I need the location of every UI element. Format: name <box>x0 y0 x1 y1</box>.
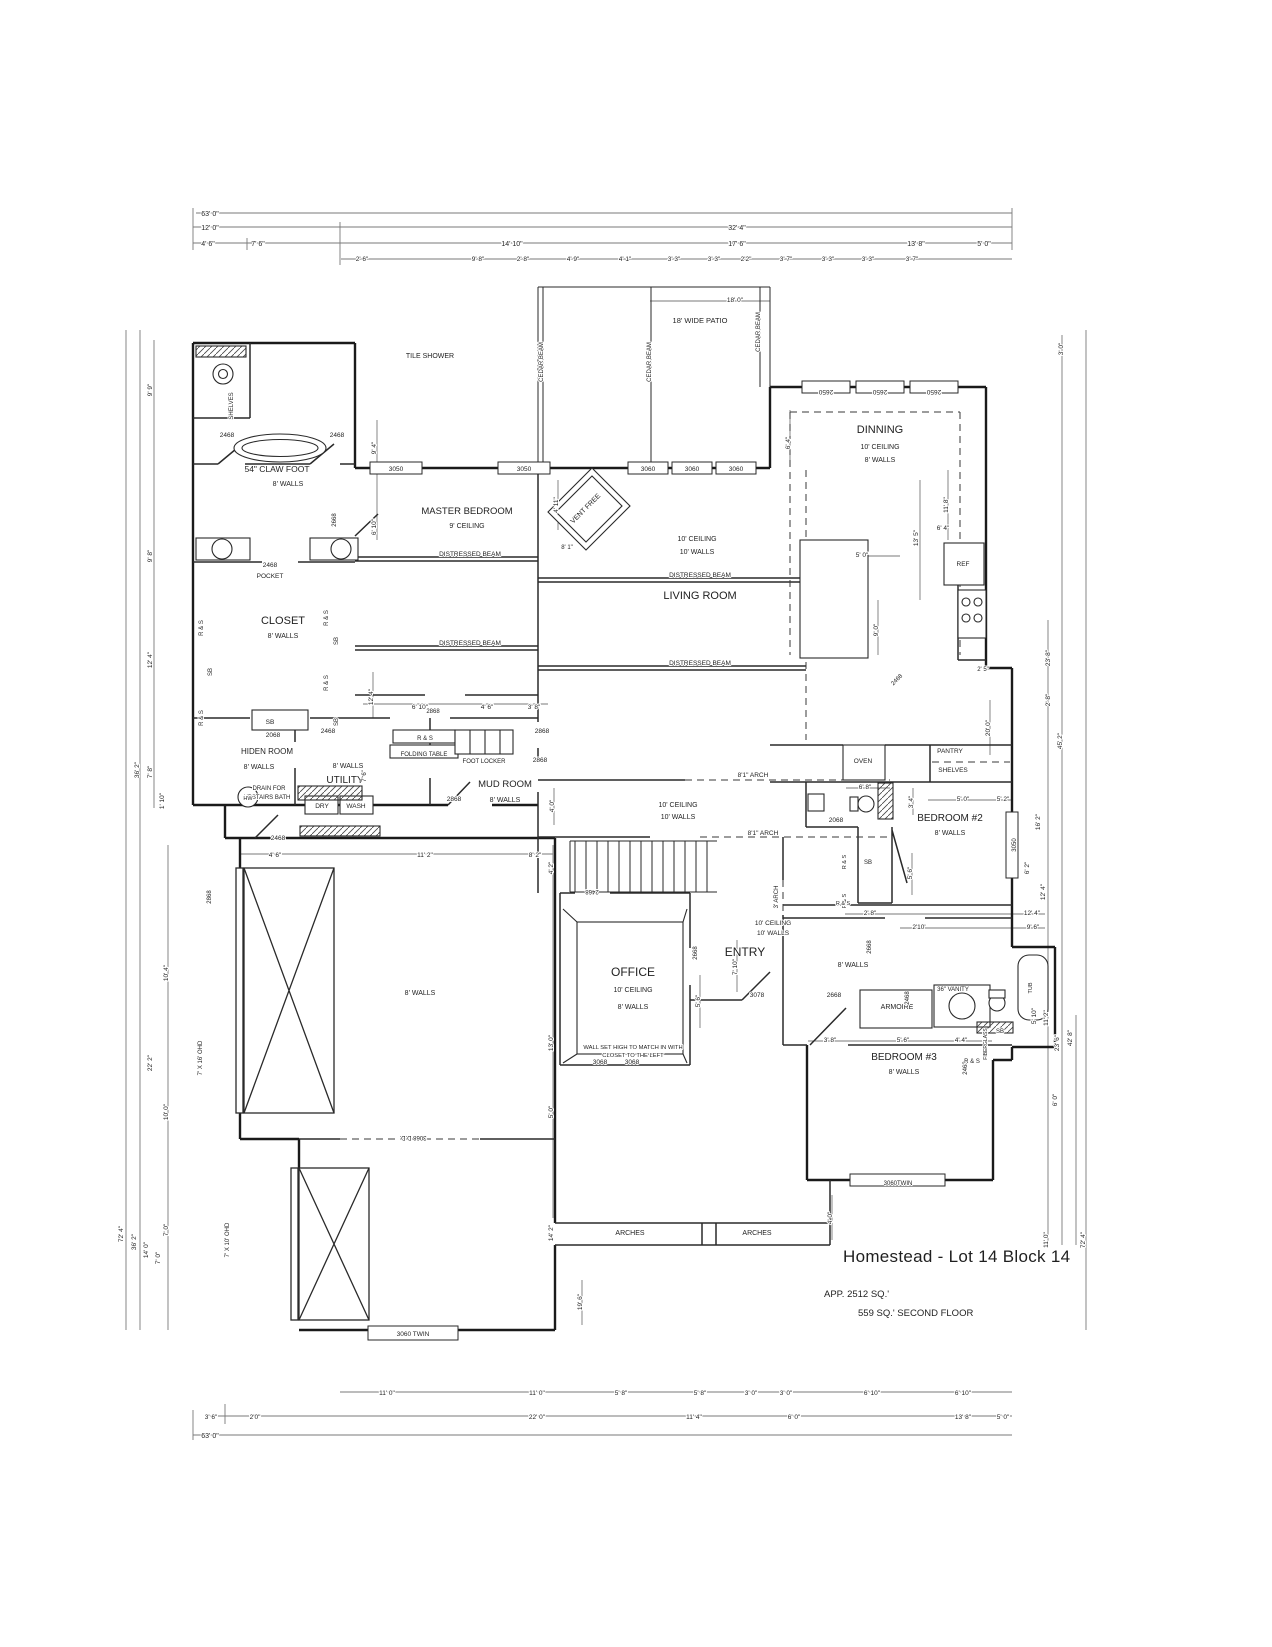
dim-label: 11' 0" <box>1043 1231 1050 1247</box>
text-label: POCKET <box>257 573 284 580</box>
dim-label: 8'1" ARCH <box>738 772 769 779</box>
dim-label: 12' 4" <box>1024 910 1041 917</box>
dim-label: 8' WALLS <box>405 990 436 997</box>
foot-locker <box>455 730 513 754</box>
dim-label: 18' 0" <box>727 297 744 304</box>
text-label: R & S <box>964 1059 980 1065</box>
dim-label: 2' 6" <box>356 256 369 263</box>
garage-door-10-label: 7' X 10' OHD <box>225 1222 231 1257</box>
dim-label: 6' 10" <box>371 518 378 535</box>
text-label: SB <box>208 668 214 676</box>
dim-label: 16' 2" <box>1035 813 1042 830</box>
dim-label: 2868 <box>207 890 213 904</box>
garage-door-16-label: 7' X 16' OHD <box>198 1040 204 1075</box>
dim-label: 4' 4" <box>955 1037 968 1044</box>
dim-label: 2868 <box>447 796 462 803</box>
dim-label: 5' 2" <box>997 796 1010 803</box>
vanity-label: 36" VANITY <box>937 987 969 993</box>
cedar-beam-label: CEDAR BEAM <box>647 342 653 382</box>
text-label: FOOT LOCKER <box>463 759 507 765</box>
bedroom2-label: BEDROOM #2 <box>917 813 983 824</box>
text-label: DISTRESSED BEAM <box>439 640 501 647</box>
dim-label: 3' 3" <box>668 256 681 263</box>
dim-label: 7' 0" <box>163 1223 170 1236</box>
dim-label: 5' 0" <box>957 796 970 803</box>
water-heater-label: HW <box>243 796 253 802</box>
plan-title: Homestead - Lot 14 Block 14 <box>843 1247 1070 1266</box>
shower-hatch <box>196 346 246 357</box>
dim-label: 2' 8" <box>864 910 877 917</box>
dim-label: 9' 6" <box>1027 924 1040 931</box>
cedar-beam-label: CEDAR BEAM <box>539 342 545 382</box>
plan-second-floor-note: 559 SQ.' SECOND FLOOR <box>858 1308 973 1319</box>
dim-label: 36' 2" <box>131 1233 138 1250</box>
office-label: OFFICE <box>611 965 655 979</box>
dim-label: 11' 2" <box>1043 1009 1050 1025</box>
dim-label: 2868 <box>535 728 550 735</box>
dim-label: 12' 4" <box>1040 883 1047 900</box>
dim-label: 8' 1" <box>561 545 573 551</box>
dim-label: 3' 0" <box>780 1390 793 1397</box>
dim-label: 72' 4" <box>118 1225 125 1242</box>
dim-label: 8' WALLS <box>268 633 299 640</box>
dim-label: 8' WALLS <box>838 962 869 969</box>
dim-label: 4' 1" <box>619 256 632 263</box>
dim-label: 4' 11" <box>553 496 560 512</box>
dim-label: 3' 8" <box>824 1037 837 1044</box>
dim-label: 8' WALLS <box>490 797 521 804</box>
dim-label: 8' WALLS <box>889 1069 920 1076</box>
text-label: SHELVES <box>938 767 968 774</box>
dim-label: 3068 <box>593 1059 608 1066</box>
dim-label: 2868 <box>533 757 548 764</box>
pantry-label: PANTRY <box>937 748 963 755</box>
text-label: SB <box>996 1029 1004 1035</box>
text-label: SB <box>334 637 340 645</box>
dim-label: 8' WALLS <box>333 763 364 770</box>
entry-label: ENTRY <box>725 945 765 959</box>
dim-label: 2'10' <box>912 924 925 931</box>
dim-label: 8' 2" <box>529 852 542 859</box>
dim-label: 3068 D.D. <box>399 1134 426 1140</box>
toilet-icon <box>858 796 874 812</box>
dim-label: 23' 6" <box>1054 1034 1061 1051</box>
patio-label: 18' WIDE PATIO <box>673 316 728 325</box>
dim-label: 3' ARCH <box>774 886 780 909</box>
text-label: DISTRESSED BEAM <box>439 551 501 558</box>
dim-label: 2650 <box>872 388 887 395</box>
dim-label: 2650 <box>926 388 941 395</box>
dim-label: 3060TWIN <box>884 1181 913 1187</box>
dim-label: 11' 2" <box>417 852 433 859</box>
dim-label: 3' 0" <box>745 1390 758 1397</box>
dim-label: 9' 9" <box>147 383 154 396</box>
master-bedroom-label: MASTER BEDROOM <box>421 506 512 517</box>
dim-label: 2468 <box>271 835 286 842</box>
text-label: WASH <box>346 803 366 810</box>
dim-label: 2468 <box>890 673 904 687</box>
dim-label: 2668 <box>827 992 842 999</box>
dim-label: 4' 6" <box>201 241 215 248</box>
dim-label: 12' 4" <box>147 651 154 668</box>
dim-label: 2468 <box>321 728 336 735</box>
dim-label: 3' 8" <box>528 704 541 711</box>
dim-label: 13' 8" <box>955 1414 972 1421</box>
dim-label: 7' 6" <box>251 241 265 248</box>
dim-label: 2'0" <box>250 1414 261 1421</box>
arches-label: ARCHES <box>615 1230 645 1237</box>
dim-label: 10' WALLS <box>661 814 696 821</box>
dim-label: 5' 0" <box>548 1105 555 1118</box>
text-label: SHELVES <box>229 392 235 419</box>
dim-label: 10' CEILING <box>677 536 716 543</box>
text-label: DISTRESSED BEAM <box>669 660 731 667</box>
dim-label: 10' CEILING <box>860 444 899 451</box>
dim-label: 2'2" <box>741 256 752 263</box>
dim-label: 23' 8" <box>1045 649 1052 666</box>
garage-doors <box>236 868 369 1320</box>
patio-outline <box>538 287 770 468</box>
dim-label: 5' 6" <box>897 1037 910 1044</box>
text-label: SB <box>864 860 872 866</box>
dim-label: 4' 9" <box>567 256 580 263</box>
dining-room-label: DINNING <box>857 424 903 436</box>
dim-label: 6' 4" <box>785 436 792 449</box>
fiberglass-tub-label: FIBERGLASS <box>983 1028 989 1060</box>
dim-label: 9' 8" <box>472 256 485 263</box>
text-label: WALL SET HIGH TO MATCH IN WITH <box>583 1045 682 1051</box>
dim-label: 3050 <box>1012 838 1018 852</box>
dim-label: 2468 <box>585 888 599 894</box>
dim-label: 3' 3" <box>822 256 835 263</box>
arches-label: ARCHES <box>742 1230 772 1237</box>
dashed-openings <box>340 412 1010 1139</box>
dim-label: 9' 4" <box>371 441 378 454</box>
dim-label: 3' 0" <box>1058 342 1065 355</box>
cabinet <box>252 710 308 730</box>
dim-label: 32' 4" <box>728 225 746 232</box>
plan-area-note: APP. 2512 SQ.' <box>824 1289 889 1300</box>
dim-label: 11' 8" <box>943 496 950 512</box>
dim-label: 12' 4" <box>368 688 375 705</box>
utility-label: UTILITY <box>326 775 364 786</box>
dim-label: 3078 <box>750 992 765 999</box>
dim-label: 3' 4" <box>908 795 915 808</box>
dim-label: 3' 3" <box>708 256 721 263</box>
dim-label: 3060 <box>685 466 700 473</box>
text-label: FOLDING TABLE <box>401 752 448 758</box>
dim-label: 9' 8" <box>147 549 154 562</box>
dim-label: 2468 <box>220 432 235 439</box>
dim-label: 2650 <box>818 388 833 395</box>
dim-label: 2668 <box>867 940 873 954</box>
dim-label: 3050 <box>517 466 532 473</box>
dim-label: 5' 0" <box>856 552 869 559</box>
dim-label: 3060 TWIN <box>397 1331 430 1338</box>
text-label: DRAIN FOR <box>253 786 287 792</box>
dim-label: 17' 6" <box>728 241 746 248</box>
dim-label: 2468 <box>263 562 278 569</box>
dim-label: 7' 10" <box>732 958 739 975</box>
dim-label: 7' 0" <box>155 1251 162 1264</box>
dim-label: 4' 0" <box>827 1211 834 1224</box>
dim-label: 63' 0" <box>201 211 219 218</box>
dim-label: 2668 <box>332 513 338 527</box>
dim-label: 14' 0" <box>143 1241 150 1258</box>
sink-icon <box>949 993 975 1019</box>
tile-shower-label: TILE SHOWER <box>406 353 454 360</box>
dim-label: 19' 6" <box>577 1293 584 1310</box>
dim-label: 3' 7" <box>906 256 919 263</box>
dim-label: 10' 4" <box>163 964 170 981</box>
sink-icon <box>331 539 351 559</box>
dim-label: 10' 0" <box>163 1103 170 1120</box>
floor-plan-canvas: Homestead - Lot 14 Block 14 APP. 2512 SQ… <box>0 0 1272 1647</box>
dim-label: 42' 8" <box>1067 1029 1074 1046</box>
dim-label: 3' 6" <box>205 1414 218 1421</box>
text-label: R & S <box>199 620 205 636</box>
dim-label: 2868 <box>426 709 440 715</box>
dim-label: 22' 0" <box>529 1414 546 1421</box>
text-label: R & S <box>842 854 848 869</box>
dim-label: 4' 0" <box>549 799 556 812</box>
dim-label: 10' CEILING <box>613 987 652 994</box>
dim-label: 11' 0" <box>529 1390 545 1397</box>
dim-label: 2' 8" <box>517 256 530 263</box>
dim-label: 2468 <box>905 991 911 1005</box>
dim-label: 5' 0" <box>977 241 991 248</box>
dim-label: 14' 2" <box>548 1224 555 1241</box>
hidden-room-label: HIDEN ROOM <box>241 747 293 756</box>
dim-label: 3060 <box>641 466 656 473</box>
bedroom3-label: BEDROOM #3 <box>871 1052 937 1063</box>
dim-label: 11' 4" <box>686 1414 702 1421</box>
dim-label: 36' 2" <box>134 761 141 778</box>
dim-label: 20' 0" <box>985 719 992 736</box>
text-label: TUB <box>1028 982 1034 993</box>
dim-label: 10' WALLS <box>680 549 715 556</box>
dim-label: 1' 10" <box>159 792 166 809</box>
dim-label: 8' WALLS <box>865 457 896 464</box>
dim-label: 6' 8" <box>859 784 872 791</box>
dim-label: 2' 5" <box>977 667 989 673</box>
dim-label: 8'1" ARCH <box>748 830 779 837</box>
dim-label: 8' WALLS <box>244 764 275 771</box>
stove <box>958 590 986 638</box>
text-label: R & S <box>324 675 330 691</box>
dim-label: 2468 <box>330 432 345 439</box>
text-label: DISTRESSED BEAM <box>669 572 731 579</box>
closet-label: CLOSET <box>261 615 305 627</box>
dim-label: 5' 8" <box>615 1390 628 1397</box>
dim-label: 5' 0" <box>997 1414 1010 1421</box>
dim-label: 10' CEILING <box>658 802 697 809</box>
dim-label: 45' 2" <box>1057 732 1064 749</box>
dim-label: 7' 6" <box>362 770 368 782</box>
dim-label: 3' 3" <box>862 256 875 263</box>
dim-label: 8' WALLS <box>618 1004 649 1011</box>
text-label: R & S <box>836 901 851 907</box>
dim-label: 6' 10" <box>955 1390 972 1397</box>
dim-label: 6' 2" <box>1024 861 1031 874</box>
sink-icon <box>212 539 232 559</box>
text-label: R & S <box>199 710 205 726</box>
dim-label: 2068 <box>829 817 844 824</box>
mud-room-label: MUD ROOM <box>478 779 532 790</box>
clawfoot-tub-label: 54" CLAW FOOT <box>244 464 309 474</box>
cedar-beam-label: CEDAR BEAM <box>756 312 762 352</box>
dim-label: 9' CEILING <box>449 523 484 530</box>
text-label: R & S <box>324 610 330 626</box>
dim-label: 12' 0" <box>201 225 219 232</box>
dim-label: 6' 4" <box>937 525 950 532</box>
text-label: DRY <box>315 803 329 810</box>
living-room-label: LIVING ROOM <box>663 590 736 602</box>
dim-label: 5' 6" <box>907 866 914 879</box>
text-label: R & S <box>417 736 433 742</box>
text-label: SB <box>266 719 275 726</box>
oven-label: OVEN <box>854 758 873 765</box>
dim-label: 3060 <box>729 466 744 473</box>
text-label: SB <box>334 718 340 726</box>
dim-label: 2068 <box>266 732 281 739</box>
dim-label: 11' 0" <box>379 1390 395 1397</box>
dim-label: 13' 5" <box>913 529 920 546</box>
dim-label: 6' 0" <box>1052 1093 1059 1106</box>
dim-label: 63' 0" <box>201 1433 219 1440</box>
dim-label: 13' 8" <box>907 241 925 248</box>
floor-plan-page: Homestead - Lot 14 Block 14 APP. 2512 SQ… <box>0 0 1272 1647</box>
dim-label: 3' 7" <box>780 256 793 263</box>
dim-label: 5' 8" <box>694 1390 707 1397</box>
dim-label: 72' 4" <box>1080 1231 1087 1248</box>
dim-label: 5' 10" <box>1031 1007 1038 1024</box>
dim-label: 22' 2" <box>147 1054 154 1071</box>
dim-label: 6' 10" <box>864 1390 881 1397</box>
dim-label: 13' 0" <box>548 1034 555 1051</box>
dim-label: 2' 8" <box>1045 693 1052 706</box>
dim-label: 7' 8" <box>147 765 154 778</box>
shower-hatch <box>878 783 893 819</box>
dim-label: 6' 0" <box>788 1414 801 1421</box>
dim-label: 5' 6" <box>695 994 702 1007</box>
dim-label: 9' 0" <box>873 623 880 636</box>
refrigerator-label: REF <box>957 561 970 568</box>
fixtures <box>196 346 1048 1063</box>
dim-label: 3068 <box>625 1059 640 1066</box>
dim-label: 10' WALLS <box>757 930 790 937</box>
dim-label: 4' 6" <box>481 704 494 711</box>
dim-label: 4' 2" <box>548 861 555 874</box>
dim-label: 3050 <box>389 466 404 473</box>
staircase <box>570 841 717 892</box>
dim-label: 2668 <box>693 946 699 960</box>
sink-cabinet <box>808 794 824 811</box>
dim-label: 8' WALLS <box>273 481 304 488</box>
dim-label: 10' CEILING <box>755 920 791 927</box>
dim-label: 8' WALLS <box>935 830 966 837</box>
dim-label: 14' 10" <box>501 241 523 248</box>
dim-label: 4' 6" <box>269 852 282 859</box>
